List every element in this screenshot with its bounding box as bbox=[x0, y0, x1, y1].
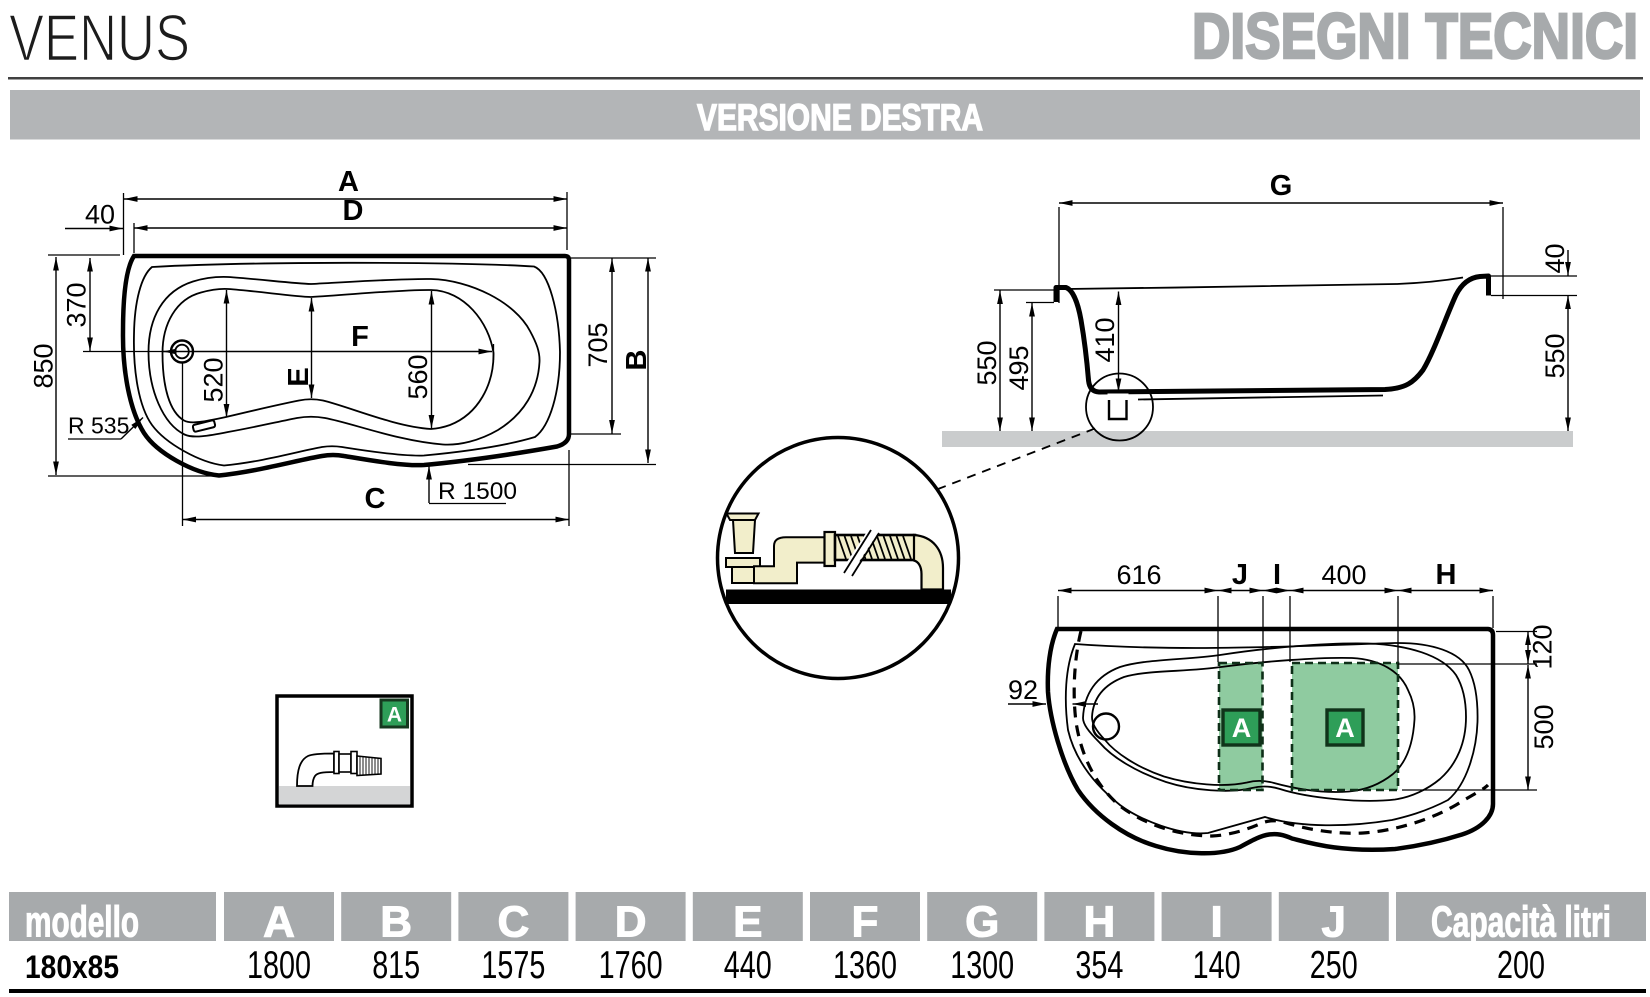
svg-text:G: G bbox=[1270, 170, 1293, 202]
svg-text:C: C bbox=[365, 483, 386, 515]
svg-text:VERSIONE DESTRA: VERSIONE DESTRA bbox=[697, 97, 983, 138]
svg-text:520: 520 bbox=[199, 357, 229, 402]
svg-text:1760: 1760 bbox=[599, 944, 663, 987]
svg-text:F: F bbox=[852, 898, 879, 947]
svg-text:DISEGNI TECNICI: DISEGNI TECNICI bbox=[1192, 0, 1638, 72]
svg-text:410: 410 bbox=[1090, 317, 1120, 362]
svg-text:J: J bbox=[1322, 898, 1346, 947]
svg-text:F: F bbox=[351, 321, 369, 353]
svg-text:E: E bbox=[283, 367, 315, 386]
svg-text:705: 705 bbox=[583, 322, 613, 367]
svg-text:H: H bbox=[1436, 559, 1457, 591]
svg-text:495: 495 bbox=[1004, 345, 1034, 390]
svg-text:B: B bbox=[380, 898, 412, 947]
svg-text:J: J bbox=[1232, 559, 1248, 591]
svg-text:354: 354 bbox=[1075, 944, 1123, 987]
svg-text:550: 550 bbox=[972, 340, 1002, 385]
svg-text:370: 370 bbox=[62, 282, 92, 327]
svg-text:B: B bbox=[621, 350, 653, 371]
svg-text:E: E bbox=[733, 898, 762, 947]
svg-text:500: 500 bbox=[1529, 704, 1559, 749]
svg-text:I: I bbox=[1210, 898, 1222, 947]
svg-text:250: 250 bbox=[1310, 944, 1358, 987]
svg-text:1800: 1800 bbox=[247, 944, 311, 987]
svg-text:550: 550 bbox=[1540, 333, 1570, 378]
svg-text:G: G bbox=[965, 898, 999, 947]
svg-text:C: C bbox=[498, 898, 530, 947]
svg-text:H: H bbox=[1084, 898, 1116, 947]
svg-text:Capacità litri: Capacità litri bbox=[1431, 898, 1611, 947]
svg-text:200: 200 bbox=[1497, 944, 1545, 987]
svg-text:40: 40 bbox=[1540, 243, 1570, 273]
svg-text:A: A bbox=[263, 898, 295, 947]
svg-text:R 535: R 535 bbox=[68, 413, 129, 439]
svg-text:40: 40 bbox=[85, 200, 115, 230]
svg-text:VENUS: VENUS bbox=[9, 1, 190, 75]
svg-text:180x85: 180x85 bbox=[25, 949, 119, 985]
svg-text:616: 616 bbox=[1116, 560, 1161, 590]
svg-text:1575: 1575 bbox=[481, 944, 545, 987]
svg-text:R 1500: R 1500 bbox=[438, 478, 517, 505]
svg-text:1300: 1300 bbox=[950, 944, 1014, 987]
svg-text:92: 92 bbox=[1008, 675, 1038, 705]
svg-text:A: A bbox=[1232, 713, 1252, 743]
svg-text:A: A bbox=[338, 166, 359, 198]
svg-text:815: 815 bbox=[372, 944, 420, 987]
svg-text:1360: 1360 bbox=[833, 944, 897, 987]
svg-text:440: 440 bbox=[724, 944, 772, 987]
svg-text:A: A bbox=[1335, 713, 1355, 743]
svg-text:A: A bbox=[387, 704, 402, 727]
svg-text:400: 400 bbox=[1321, 560, 1366, 590]
svg-text:850: 850 bbox=[29, 343, 59, 388]
svg-text:I: I bbox=[1273, 559, 1281, 591]
svg-text:140: 140 bbox=[1193, 944, 1241, 987]
svg-text:D: D bbox=[615, 898, 647, 947]
svg-text:560: 560 bbox=[403, 354, 433, 399]
svg-text:D: D bbox=[343, 195, 364, 227]
svg-text:modello: modello bbox=[25, 898, 139, 947]
